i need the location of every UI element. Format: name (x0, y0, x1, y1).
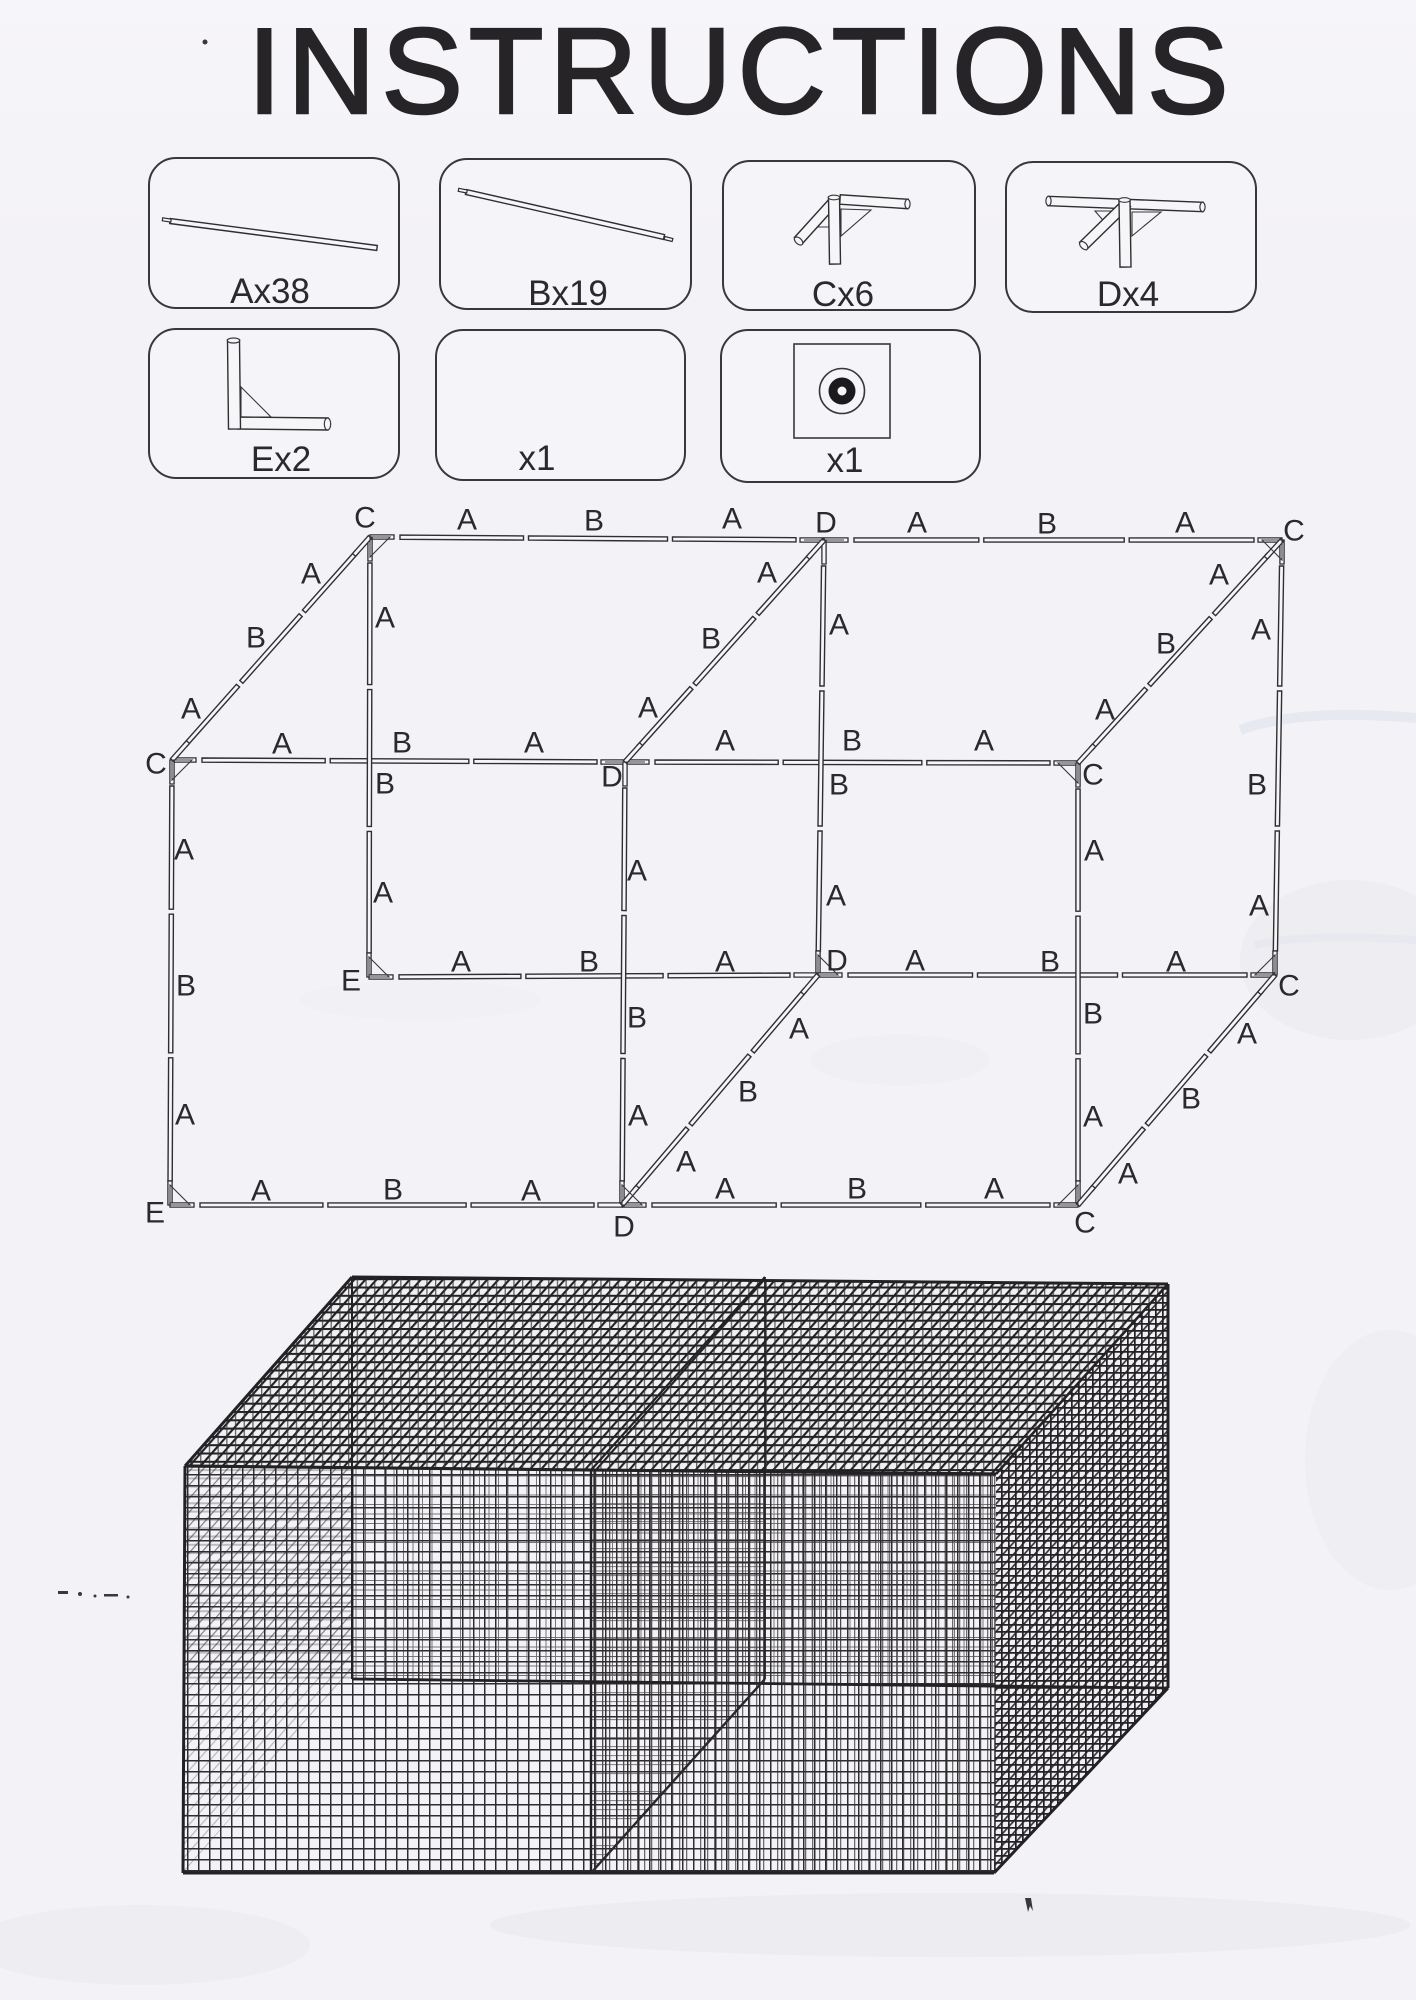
svg-text:B: B (375, 768, 395, 801)
svg-text:E: E (145, 1197, 165, 1230)
svg-text:A: A (251, 1175, 271, 1208)
svg-text:Ax38: Ax38 (230, 272, 310, 311)
svg-text:A: A (272, 728, 292, 761)
svg-text:B: B (383, 1174, 403, 1207)
svg-text:A: A (1209, 559, 1229, 592)
svg-text:A: A (638, 692, 658, 725)
svg-text:A: A (907, 507, 927, 540)
svg-text:A: A (1251, 614, 1271, 647)
svg-text:B: B (829, 769, 849, 802)
svg-text:D: D (613, 1211, 635, 1244)
svg-text:A: A (715, 946, 735, 979)
svg-text:A: A (715, 1173, 735, 1206)
svg-text:B: B (1083, 998, 1103, 1031)
svg-text:A: A (1249, 890, 1269, 923)
svg-text:A: A (1118, 1158, 1138, 1191)
svg-text:B: B (627, 1002, 647, 1035)
svg-text:B: B (738, 1076, 758, 1109)
svg-text:A: A (974, 725, 994, 758)
svg-text:A: A (757, 557, 777, 590)
svg-text:B: B (1040, 946, 1060, 979)
svg-text:A: A (451, 946, 471, 979)
svg-text:B: B (1181, 1083, 1201, 1116)
svg-text:C: C (1283, 515, 1305, 548)
svg-text:A: A (789, 1013, 809, 1046)
svg-text:A: A (1166, 946, 1186, 979)
svg-text:B: B (701, 623, 721, 656)
svg-text:C: C (1278, 970, 1300, 1003)
svg-text:A: A (1083, 1101, 1103, 1134)
svg-text:A: A (1237, 1018, 1257, 1051)
svg-text:D: D (815, 507, 837, 540)
svg-text:A: A (676, 1146, 696, 1179)
svg-text:A: A (174, 834, 194, 867)
svg-text:A: A (829, 609, 849, 642)
svg-text:Bx19: Bx19 (528, 274, 608, 313)
svg-text:A: A (375, 602, 395, 635)
svg-text:A: A (1084, 835, 1104, 868)
svg-text:A: A (175, 1099, 195, 1132)
svg-text:A: A (826, 880, 846, 913)
svg-text:B: B (579, 946, 599, 979)
svg-text:A: A (1175, 507, 1195, 540)
svg-text:C: C (1074, 1207, 1096, 1240)
svg-text:A: A (521, 1175, 541, 1208)
svg-text:A: A (181, 693, 201, 726)
svg-text:INSTRUCTIONS: INSTRUCTIONS (248, 3, 1235, 139)
svg-text:A: A (301, 558, 321, 591)
svg-text:B: B (1156, 628, 1176, 661)
svg-text:A: A (905, 945, 925, 978)
svg-text:A: A (984, 1173, 1004, 1206)
svg-text:E: E (341, 965, 361, 998)
svg-text:B: B (1247, 769, 1267, 802)
svg-text:C: C (354, 502, 376, 535)
svg-text:B: B (392, 727, 412, 760)
svg-text:B: B (847, 1173, 867, 1206)
svg-text:A: A (457, 504, 477, 537)
svg-text:Dx4: Dx4 (1097, 275, 1159, 314)
svg-text:A: A (524, 727, 544, 760)
svg-text:A: A (722, 503, 742, 536)
svg-text:C: C (145, 748, 167, 781)
svg-text:A: A (628, 1100, 648, 1133)
svg-text:A: A (1095, 694, 1115, 727)
svg-text:Cx6: Cx6 (812, 275, 874, 314)
svg-text:B: B (842, 725, 862, 758)
svg-text:x1: x1 (519, 439, 556, 478)
svg-text:A: A (627, 855, 647, 888)
svg-text:A: A (715, 725, 735, 758)
svg-text:B: B (584, 505, 604, 538)
svg-text:D: D (826, 945, 848, 978)
svg-text:B: B (246, 622, 266, 655)
svg-text:D: D (601, 761, 623, 794)
svg-text:x1: x1 (827, 441, 864, 480)
svg-text:A: A (373, 877, 393, 910)
svg-text:B: B (176, 970, 196, 1003)
svg-text:Ex2: Ex2 (251, 440, 311, 479)
svg-text:B: B (1037, 508, 1057, 541)
svg-text:C: C (1082, 759, 1104, 792)
